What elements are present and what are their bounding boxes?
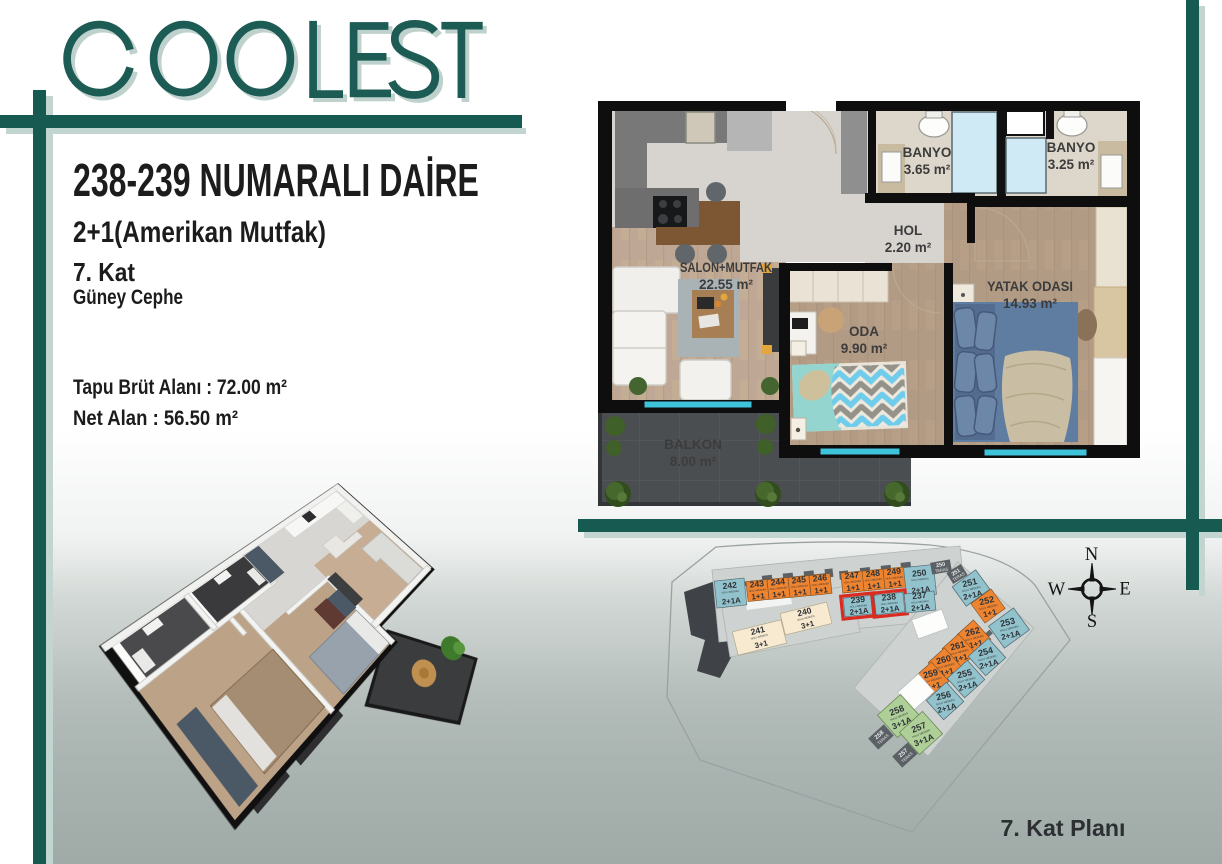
svg-text:9.90 m²: 9.90 m² (841, 341, 888, 356)
svg-text:238-239 NUMARALI DAİRE: 238-239 NUMARALI DAİRE (73, 155, 479, 206)
svg-text:Tapu Brüt Alanı : 72.00 m²: Tapu Brüt Alanı : 72.00 m² (73, 376, 287, 399)
svg-text:BANYO: BANYO (903, 145, 952, 160)
svg-text:1+1: 1+1 (772, 589, 787, 599)
svg-text:Net Alan : 56.50 m²: Net Alan : 56.50 m² (73, 407, 238, 430)
svg-text:22.55 m²: 22.55 m² (699, 277, 754, 292)
svg-text:3.25 m²: 3.25 m² (1048, 157, 1095, 172)
svg-text:E: E (1119, 580, 1130, 600)
svg-text:7. Kat: 7. Kat (73, 257, 135, 287)
svg-text:7. Kat Planı: 7. Kat Planı (1001, 815, 1126, 841)
svg-text:14.93 m²: 14.93 m² (1003, 296, 1058, 311)
svg-text:1+1: 1+1 (814, 585, 829, 595)
svg-text:1+1: 1+1 (867, 581, 882, 591)
svg-text:1+1: 1+1 (888, 579, 903, 589)
svg-text:BALKON: BALKON (664, 437, 722, 452)
svg-text:HOL: HOL (894, 223, 923, 238)
svg-text:1+1: 1+1 (751, 591, 766, 601)
svg-text:1+1: 1+1 (793, 587, 808, 597)
svg-text:Güney Cephe: Güney Cephe (73, 286, 183, 309)
svg-text:ODA: ODA (849, 324, 879, 339)
svg-text:YATAK ODASI: YATAK ODASI (987, 279, 1073, 294)
svg-text:BANYO: BANYO (1047, 140, 1096, 155)
svg-text:S: S (1087, 612, 1097, 632)
svg-text:W: W (1048, 580, 1066, 600)
svg-text:3.65 m²: 3.65 m² (904, 162, 951, 177)
svg-text:N: N (1085, 545, 1098, 565)
svg-text:SALON+MUTFAK: SALON+MUTFAK (680, 260, 772, 275)
svg-text:2+1(Amerikan Mutfak): 2+1(Amerikan Mutfak) (73, 214, 326, 248)
svg-text:1+1: 1+1 (846, 583, 861, 593)
svg-text:2.20 m²: 2.20 m² (885, 240, 932, 255)
svg-text:8.00 m²: 8.00 m² (670, 454, 717, 469)
